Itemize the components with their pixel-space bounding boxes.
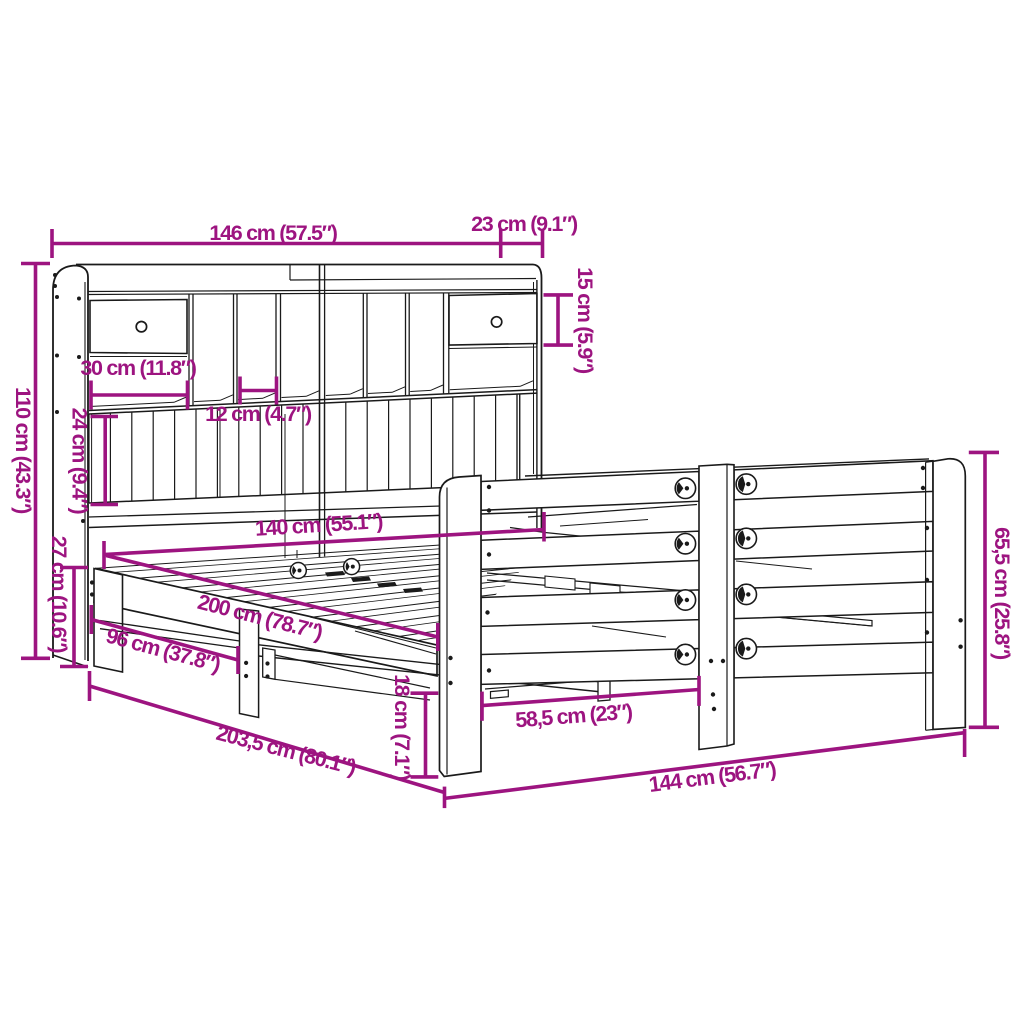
svg-text:110 cm (43.3″): 110 cm (43.3″)	[11, 387, 35, 514]
svg-text:24 cm (9.4″): 24 cm (9.4″)	[68, 408, 92, 515]
svg-text:65,5 cm (25.8″): 65,5 cm (25.8″)	[990, 527, 1014, 660]
svg-text:18 cm (7.1″): 18 cm (7.1″)	[390, 674, 414, 781]
svg-text:15 cm (5.9″): 15 cm (5.9″)	[573, 267, 597, 374]
svg-text:146 cm (57.5″): 146 cm (57.5″)	[209, 221, 337, 245]
svg-text:12 cm (4.7″): 12 cm (4.7″)	[205, 402, 312, 426]
svg-text:30 cm (11.8″): 30 cm (11.8″)	[80, 356, 196, 380]
svg-text:23 cm (9.1″): 23 cm (9.1″)	[471, 212, 578, 236]
svg-text:27 cm (10.6″): 27 cm (10.6″)	[47, 536, 71, 654]
